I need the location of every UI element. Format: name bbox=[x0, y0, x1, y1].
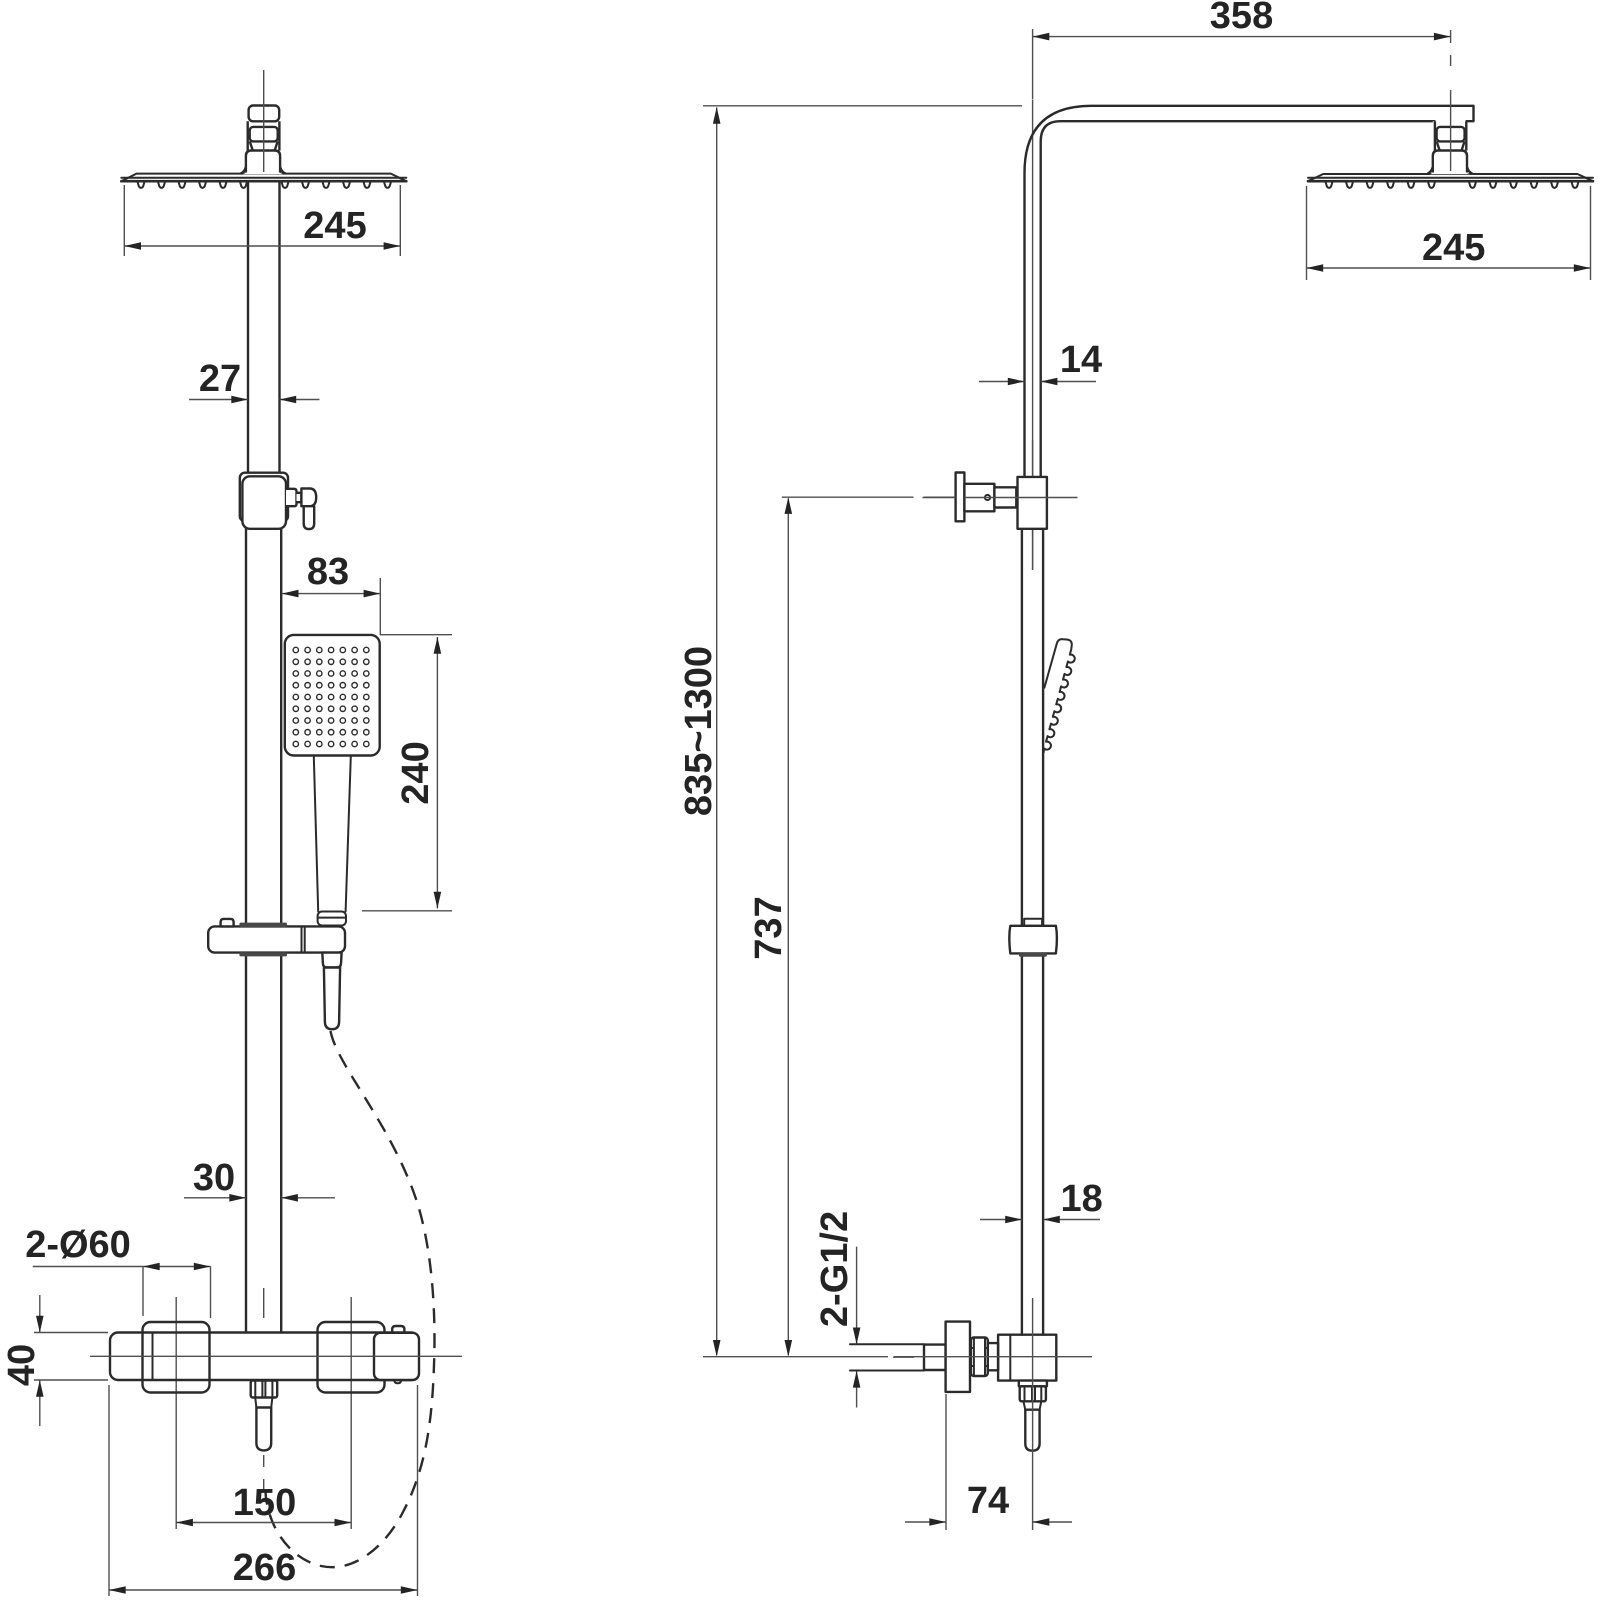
svg-text:83: 83 bbox=[307, 551, 349, 593]
svg-text:240: 240 bbox=[395, 741, 437, 804]
svg-text:27: 27 bbox=[199, 358, 241, 400]
svg-text:150: 150 bbox=[233, 1482, 296, 1524]
svg-text:245: 245 bbox=[1422, 227, 1485, 269]
svg-text:30: 30 bbox=[193, 1157, 235, 1199]
svg-text:245: 245 bbox=[303, 205, 366, 247]
svg-text:2-Ø60: 2-Ø60 bbox=[25, 1224, 131, 1266]
svg-text:74: 74 bbox=[967, 1480, 1009, 1522]
svg-text:40: 40 bbox=[1, 1344, 43, 1386]
svg-text:737: 737 bbox=[748, 896, 790, 959]
svg-text:18: 18 bbox=[1061, 1178, 1103, 1220]
svg-text:2-G1/2: 2-G1/2 bbox=[814, 1211, 856, 1327]
svg-text:835~1300: 835~1300 bbox=[678, 646, 720, 816]
svg-text:14: 14 bbox=[1060, 339, 1102, 381]
svg-text:358: 358 bbox=[1210, 0, 1273, 37]
svg-text:266: 266 bbox=[233, 1547, 296, 1589]
